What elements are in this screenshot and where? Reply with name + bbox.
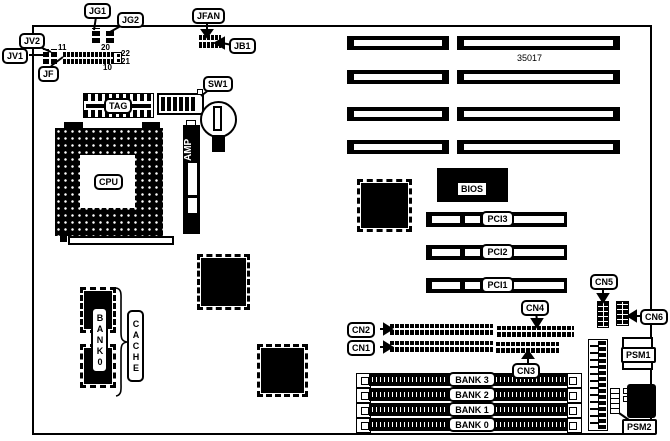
pci1-label: PCI1 xyxy=(481,277,514,293)
bios-label: BIOS xyxy=(456,181,488,197)
cn1-label: CN1 xyxy=(347,340,375,356)
motherboard-diagram: 11 20 10 22 21 JG1 JG2 JFAN JB1 JV2 JV1 … xyxy=(0,0,670,441)
din-tab-upper xyxy=(623,388,628,394)
sw1-label: SW1 xyxy=(203,76,233,92)
cn5-label: CN5 xyxy=(590,274,618,290)
psm2-label: PSM2 xyxy=(622,419,657,435)
jf-pin22 xyxy=(117,54,120,57)
pci3-label: PCI3 xyxy=(481,211,514,227)
sw1-notch xyxy=(197,89,203,95)
cpu-label: CPU xyxy=(94,174,123,190)
jf-pin21 xyxy=(117,59,120,62)
jf-label: JF xyxy=(38,66,59,82)
jb1-label: JB1 xyxy=(229,38,256,54)
tag-label: TAG xyxy=(104,98,132,114)
pci2-label: PCI2 xyxy=(481,244,514,260)
din-tab-lower xyxy=(623,396,628,402)
cache-brace xyxy=(116,288,127,396)
cn4-label: CN4 xyxy=(521,300,549,316)
pin-number-20: 20 xyxy=(101,44,110,52)
jv2-label: JV2 xyxy=(19,33,45,49)
jv1-label: JV1 xyxy=(2,48,28,64)
psm1-label: PSM1 xyxy=(621,347,656,363)
cn2-label: CN2 xyxy=(347,322,375,338)
jfan-label: JFAN xyxy=(192,8,225,24)
cn6-label: CN6 xyxy=(640,309,668,325)
bank0-vertical-label: BANK0 xyxy=(91,307,108,373)
pin-number-21: 21 xyxy=(121,58,130,66)
cache-label: CACHE xyxy=(127,310,144,382)
pin-number-10: 10 xyxy=(103,64,112,72)
jg2-label: JG2 xyxy=(117,12,144,28)
battery-post xyxy=(213,106,222,131)
jg1-label: JG1 xyxy=(84,3,111,19)
cn3-label: CN3 xyxy=(512,363,540,379)
board-part-number: 35017 xyxy=(517,53,542,63)
leader-lines xyxy=(0,0,670,441)
pin-number-11: 11 xyxy=(58,44,66,52)
